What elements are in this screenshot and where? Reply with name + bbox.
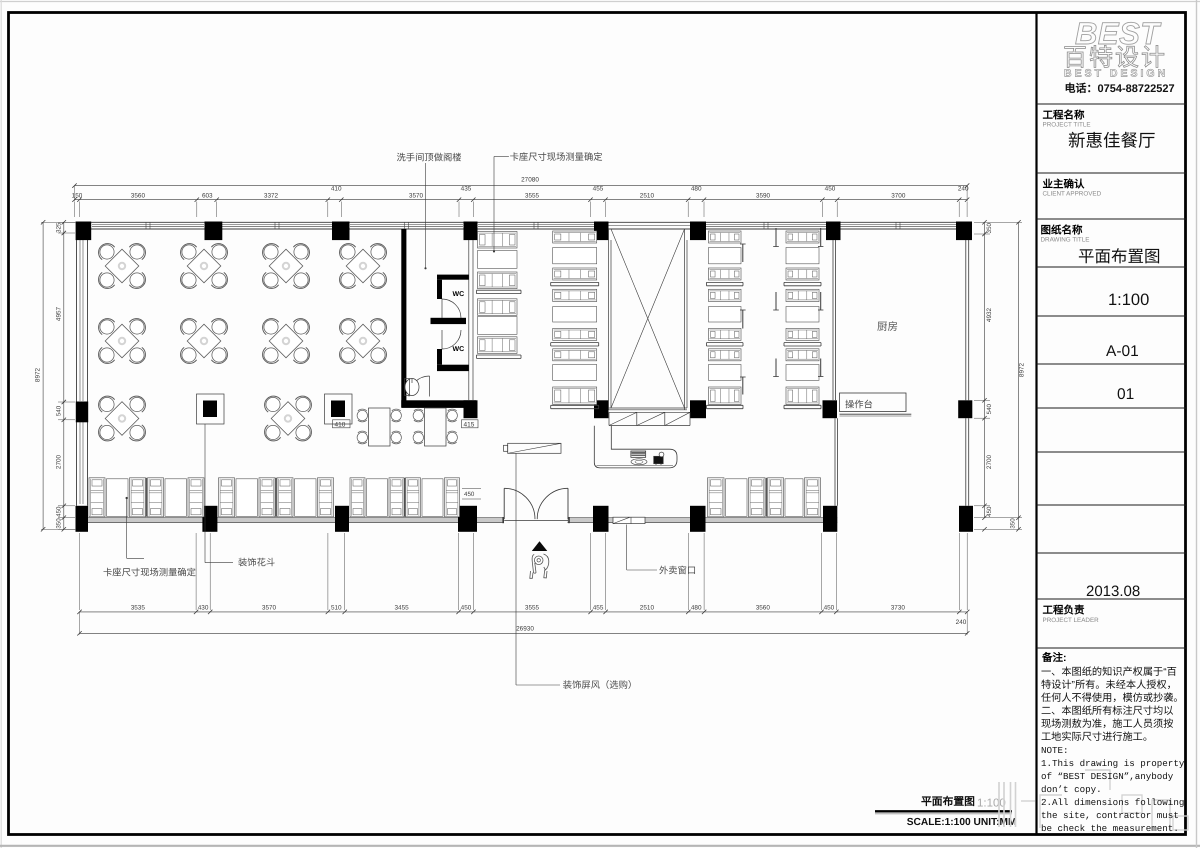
svg-text:4957: 4957	[55, 306, 62, 321]
svg-text:DRAWING TITLE: DRAWING TITLE	[1041, 237, 1090, 244]
svg-text:435: 435	[461, 186, 472, 193]
svg-text:325: 325	[55, 222, 62, 233]
svg-text:PROJECT TITLE: PROJECT TITLE	[1043, 122, 1091, 129]
svg-text:2700: 2700	[986, 454, 993, 469]
svg-text:装饰屏风（选购）: 装饰屏风（选购）	[563, 680, 637, 690]
svg-text:450: 450	[464, 491, 475, 498]
svg-text:8972: 8972	[35, 367, 42, 382]
svg-text:图纸名称: 图纸名称	[1041, 224, 1083, 237]
svg-text:3555: 3555	[525, 605, 540, 612]
svg-text:350: 350	[1010, 518, 1017, 529]
svg-text:of “BEST DESIGN”,anybody: of “BEST DESIGN”,anybody	[1041, 771, 1174, 782]
svg-text:455: 455	[593, 186, 604, 193]
svg-text:603: 603	[202, 193, 213, 200]
svg-text:3700: 3700	[891, 193, 906, 200]
svg-text:2510: 2510	[640, 605, 655, 612]
svg-text:1.This drawing is property: 1.This drawing is property	[1041, 758, 1185, 769]
svg-text:1:100: 1:100	[1108, 291, 1149, 309]
svg-text:450: 450	[825, 186, 836, 193]
svg-text:电话：0754-88722527: 电话：0754-88722527	[1065, 82, 1175, 95]
svg-text:540: 540	[986, 403, 993, 414]
svg-text:任何人不得使用，模仿或抄袭。: 任何人不得使用，模仿或抄袭。	[1041, 692, 1184, 704]
svg-text:装饰花斗: 装饰花斗	[238, 558, 275, 568]
svg-text:3535: 3535	[131, 605, 146, 612]
svg-text:业主确认: 业主确认	[1043, 178, 1085, 191]
svg-text:PROJECT LEADER: PROJECT LEADER	[1043, 617, 1100, 624]
svg-text:450: 450	[461, 605, 472, 612]
svg-text:240: 240	[958, 186, 969, 193]
svg-text:现场测敖为准，施工人员须按: 现场测敖为准，施工人员须按	[1041, 718, 1173, 730]
svg-text:平面布置图: 平面布置图	[1078, 248, 1161, 266]
svg-text:新惠佳餐厅: 新惠佳餐厅	[1068, 131, 1156, 151]
svg-text:WC: WC	[453, 291, 465, 298]
svg-text:WC: WC	[453, 346, 465, 353]
svg-text:240: 240	[956, 619, 967, 626]
svg-text:415: 415	[464, 422, 475, 429]
svg-text:3372: 3372	[264, 193, 279, 200]
svg-text:2.All dimensions following: 2.All dimensions following	[1041, 797, 1184, 808]
svg-text:备注:: 备注:	[1041, 651, 1067, 664]
svg-text:BEST DESIGN: BEST DESIGN	[1064, 68, 1168, 80]
svg-text:1:100: 1:100	[977, 798, 1006, 810]
svg-text:卡座尺寸现场测量确定: 卡座尺寸现场测量确定	[103, 568, 196, 578]
svg-text:01: 01	[1117, 386, 1134, 403]
svg-text:特设计”所有。未经本人授权，: 特设计”所有。未经本人授权，	[1041, 679, 1177, 691]
svg-text:510: 510	[331, 605, 342, 612]
svg-text:卡座尺寸现场测量确定: 卡座尺寸现场测量确定	[510, 152, 603, 162]
svg-text:3560: 3560	[756, 605, 771, 612]
svg-text:外卖窗口: 外卖窗口	[659, 566, 696, 576]
svg-text:4932: 4932	[986, 307, 993, 322]
svg-text:CLIENT APPROVED: CLIENT APPROVED	[1043, 191, 1102, 198]
svg-text:be check the measurement.: be check the measurement.	[1041, 823, 1179, 834]
svg-text:操作台: 操作台	[845, 400, 873, 410]
svg-text:3455: 3455	[394, 605, 409, 612]
svg-text:NOTE:: NOTE:	[1041, 745, 1069, 756]
svg-text:450: 450	[986, 506, 993, 517]
svg-text:厨房: 厨房	[877, 321, 898, 333]
svg-text:二、本图纸所有标注尺寸均以: 二、本图纸所有标注尺寸均以	[1041, 705, 1173, 717]
svg-text:don’t copy.: don’t copy.	[1041, 784, 1102, 795]
svg-text:540: 540	[55, 405, 62, 416]
svg-text:480: 480	[691, 605, 702, 612]
svg-text:410: 410	[331, 186, 342, 193]
svg-text:27080: 27080	[521, 177, 539, 184]
svg-text:工程负责: 工程负责	[1043, 604, 1085, 617]
svg-text:3570: 3570	[262, 605, 277, 612]
svg-text:工程名称: 工程名称	[1043, 109, 1085, 122]
svg-text:SCALE:1:100 UNIT:MM: SCALE:1:100 UNIT:MM	[907, 817, 1017, 828]
svg-text:3555: 3555	[525, 193, 540, 200]
svg-text:工地实际尺寸进行施工。: 工地实际尺寸进行施工。	[1041, 731, 1153, 743]
svg-text:3590: 3590	[756, 193, 771, 200]
svg-text:2700: 2700	[55, 454, 62, 469]
svg-text:410: 410	[335, 422, 346, 429]
svg-text:150: 150	[72, 193, 83, 200]
svg-text:2013.08: 2013.08	[1086, 583, 1140, 600]
svg-text:430: 430	[198, 605, 209, 612]
svg-text:平面布置图: 平面布置图	[921, 795, 975, 808]
svg-text:8972: 8972	[1019, 362, 1026, 377]
svg-text:450: 450	[824, 605, 835, 612]
svg-text:3560: 3560	[131, 193, 146, 200]
svg-text:A-01: A-01	[1106, 343, 1139, 360]
svg-text:26930: 26930	[516, 626, 534, 633]
svg-text:3730: 3730	[891, 605, 906, 612]
svg-text:洗手间顶做阁楼: 洗手间顶做阁楼	[397, 153, 462, 163]
svg-text:the site, contractor must: the site, contractor must	[1041, 810, 1179, 821]
svg-text:350: 350	[55, 518, 62, 529]
svg-text:2510: 2510	[640, 193, 655, 200]
svg-text:一、本图纸的知识产权属于“百: 一、本图纸的知识产权属于“百	[1041, 666, 1177, 678]
svg-text:350: 350	[986, 222, 993, 233]
svg-text:3570: 3570	[409, 193, 424, 200]
svg-text:455: 455	[593, 605, 604, 612]
svg-text:480: 480	[691, 186, 702, 193]
svg-text:450: 450	[55, 506, 62, 517]
